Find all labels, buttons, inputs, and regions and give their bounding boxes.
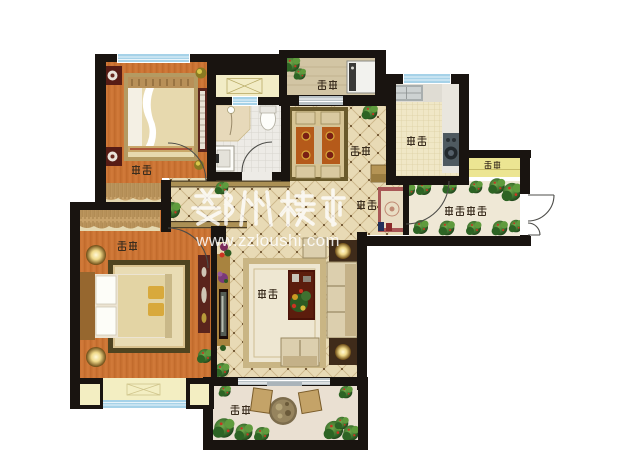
svg-text:www.zzloushi.com: www.zzloushi.com (195, 231, 340, 250)
